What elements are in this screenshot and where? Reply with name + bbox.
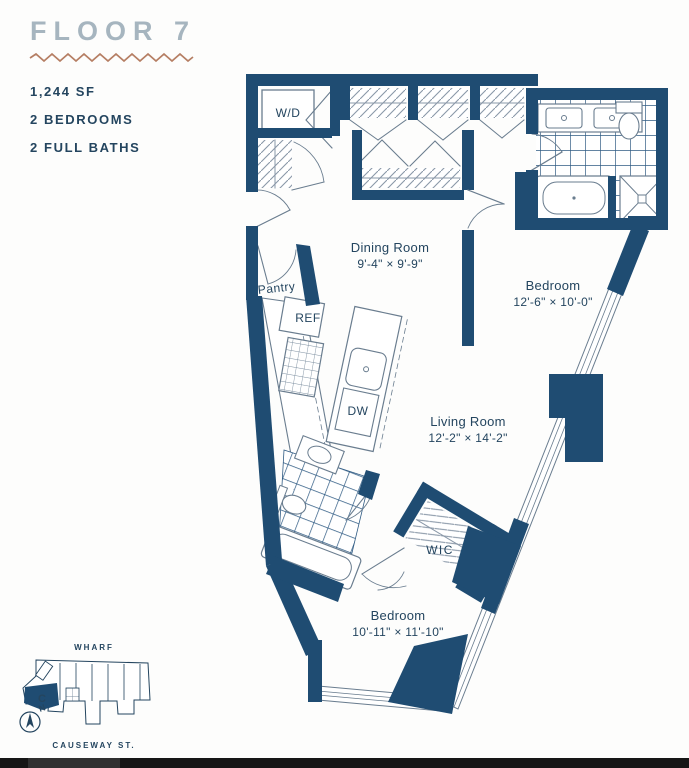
room-dims-bedroom1: 12'-6" × 10'-0" [513,295,592,309]
title-zigzag [30,54,193,61]
floorplan-page: { "header": { "title": "FLOOR 7" }, "uni… [0,0,689,768]
label-dw: DW [348,404,369,418]
room-dims-living: 12'-2" × 14'-2" [428,431,507,445]
label-ref: REF [295,311,321,325]
door-leaf [292,182,324,190]
room-label-bedroom2: Bedroom [371,608,426,623]
kitchen-island [326,307,408,453]
entry-door-arc [254,190,290,210]
living-closet [356,140,460,188]
unit-floorplan: Dining Room 9'-4" × 9'-9" Bedroom 12'-6"… [246,74,668,714]
room-label-living: Living Room [430,414,506,429]
room-dims-bedroom2: 10'-11" × 11'-10" [352,625,443,639]
entry-door-leaf [254,210,290,228]
pantry [258,246,296,284]
bathroom-main [532,98,664,222]
label-pantry: Pantry [257,279,296,297]
sitemap-street-bottom: CAUSEWAY ST. [52,741,135,750]
bifold-doors [356,140,460,166]
door-leaf [468,190,504,204]
room-label-dining: Dining Room [351,240,429,255]
sitemap-street-top: WHARF [74,643,114,652]
room-label-bedroom1: Bedroom [526,278,581,293]
linen-closet [258,140,324,190]
compass-icon: N [20,702,47,732]
island-sink-icon [345,347,388,392]
room-dims-dining: 9'-4" × 9'-9" [357,257,422,271]
label-washer-dryer: W/D [276,106,301,120]
bathtub-icon [536,176,612,220]
door-leaf [362,548,404,574]
site-map: WHARF C N CAUSEWAY ST. [20,643,150,750]
bottom-strip [0,758,689,768]
floorplan-graphic: Dining Room 9'-4" × 9'-9" Bedroom 12'-6"… [0,0,689,768]
hall-closets [350,88,524,140]
door-arc [468,204,504,228]
sink-icon [546,108,582,128]
label-wic: WIC [426,543,454,557]
door-arc [362,574,406,588]
door-arc [294,142,324,182]
